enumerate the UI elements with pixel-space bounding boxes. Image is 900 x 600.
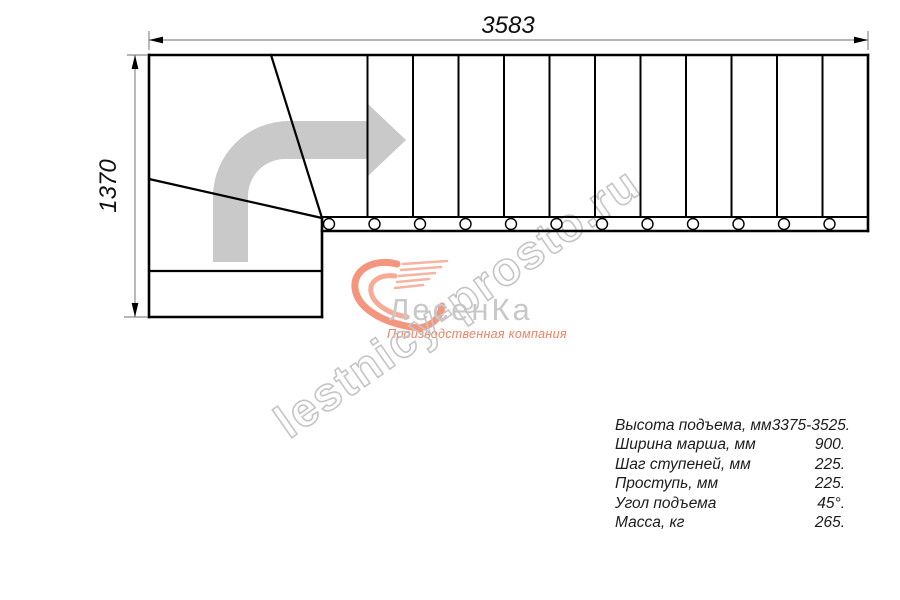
spec-label: Шаг ступеней, мм (615, 455, 751, 474)
spec-row: Проступь, мм225. (615, 474, 845, 493)
dim-arrow-down-icon (132, 303, 139, 317)
dimension-width-label: 3583 (481, 12, 535, 39)
blueprint-canvas: ЛесенКа Производственная компания lestni… (0, 0, 900, 600)
spec-label: Масса, кг (615, 513, 684, 532)
spec-value: 3375-3525. (772, 416, 850, 435)
dimension-width: 3583 (149, 12, 868, 50)
spec-label: Высота подъема, мм (615, 416, 772, 435)
baluster-circle (415, 219, 426, 230)
spec-value: 225. (815, 474, 845, 493)
spec-table: Высота подъема, мм3375-3525.Ширина марша… (615, 416, 845, 532)
spec-value: 45°. (817, 494, 845, 513)
baluster-circle (369, 219, 380, 230)
baluster-circle (733, 219, 744, 230)
dim-arrow-right-icon (854, 37, 868, 44)
baluster-circles (324, 219, 836, 230)
direction-arrow-icon (213, 104, 406, 262)
dim-arrow-up-icon (132, 55, 139, 69)
spec-value: 900. (815, 435, 845, 454)
baluster-circle (597, 219, 608, 230)
spec-row: Шаг ступеней, мм225. (615, 455, 845, 474)
spec-value: 265. (815, 513, 845, 532)
spec-row: Ширина марша, мм900. (615, 435, 845, 454)
tread-lines (368, 56, 823, 217)
baluster-circle (506, 219, 517, 230)
baluster-circle (688, 219, 699, 230)
spec-row: Угол подъема45°. (615, 494, 845, 513)
dimension-depth-label: 1370 (95, 159, 122, 213)
stair-outline (149, 55, 868, 317)
spec-row: Высота подъема, мм3375-3525. (615, 416, 845, 435)
dim-arrow-left-icon (149, 37, 163, 44)
baluster-circle (642, 219, 653, 230)
baluster-circle (324, 219, 335, 230)
spec-label: Проступь, мм (615, 474, 718, 493)
spec-label: Ширина марша, мм (615, 435, 756, 454)
dimension-depth: 1370 (95, 55, 147, 317)
baluster-circle (824, 219, 835, 230)
spec-row: Масса, кг265. (615, 513, 845, 532)
baluster-circle (779, 219, 790, 230)
baluster-circle (460, 219, 471, 230)
spec-value: 225. (815, 455, 845, 474)
spec-label: Угол подъема (615, 494, 716, 513)
baluster-circle (551, 219, 562, 230)
